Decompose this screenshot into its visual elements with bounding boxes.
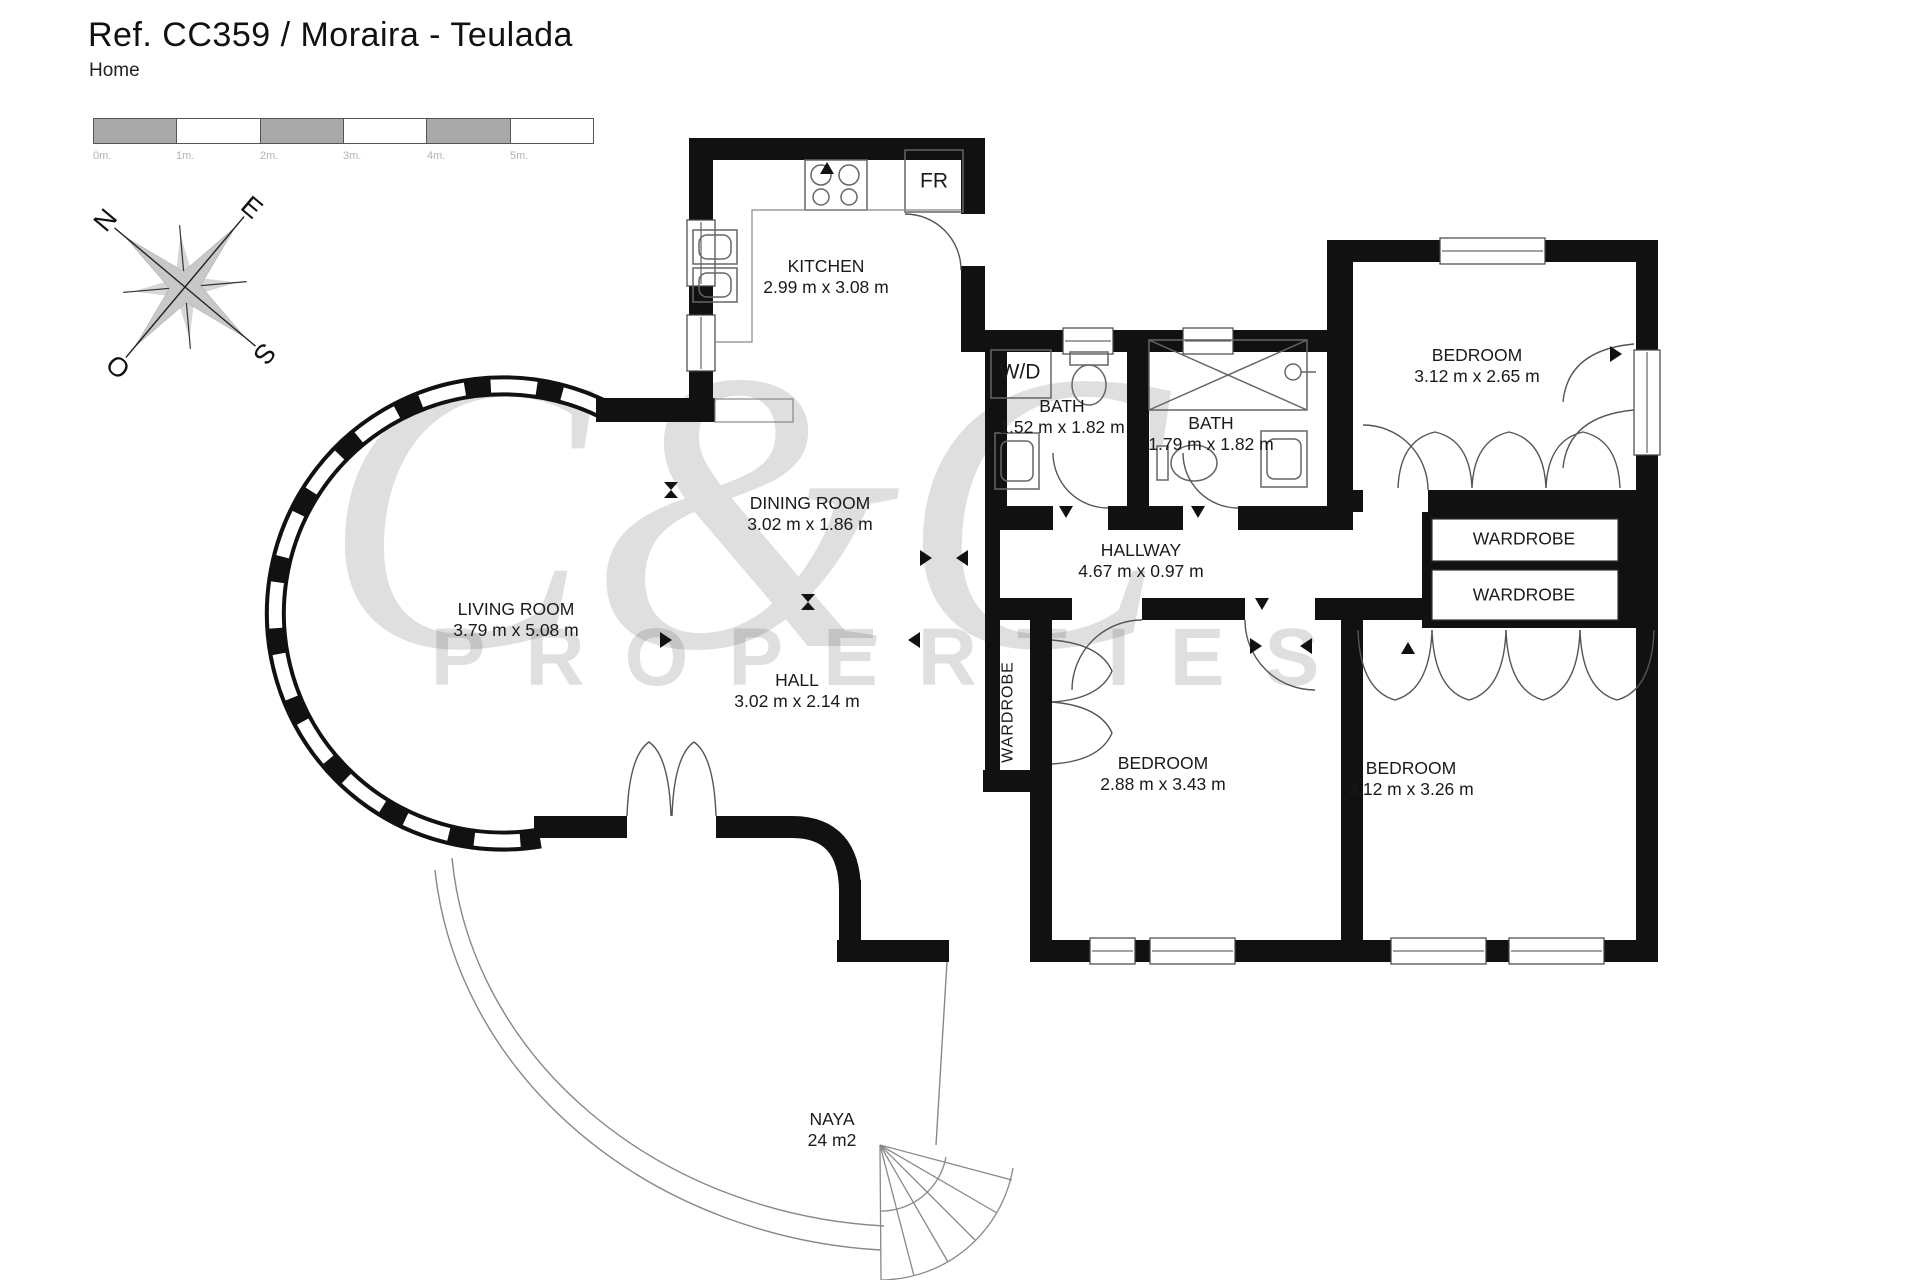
washer-dryer-label: W/D (1000, 362, 1041, 383)
wardrobe-vertical-label: WARDROBE (998, 661, 1019, 763)
room-label-bedroom-bottom-right: BEDROOM 3.12 m x 3.26 m (1348, 758, 1473, 800)
curved-wall (792, 827, 850, 892)
naya-outline (435, 858, 947, 1250)
floorplan-page: Ref. CC359 / Moraira - Teulada Home 0m. … (0, 0, 1920, 1280)
room-label-kitchen: KITCHEN 2.99 m x 3.08 m (763, 256, 888, 298)
room-label-bedroom-middle: BEDROOM 2.88 m x 3.43 m (1100, 753, 1225, 795)
wardrobe-lower-label: WARDROBE (1473, 585, 1575, 606)
room-label-bath-large: BATH 1.79 m x 1.82 m (1148, 413, 1273, 455)
floorplan-drawing (0, 0, 1920, 1280)
fridge-label: FR (920, 171, 948, 192)
kitchen-peninsula (715, 399, 793, 422)
stove-icon (805, 160, 867, 210)
wardrobe-upper-label: WARDROBE (1473, 529, 1575, 550)
room-label-bedroom-top-right: BEDROOM 3.12 m x 2.65 m (1414, 345, 1539, 387)
room-label-bath-small: BATH 1.52 m x 1.82 m (999, 396, 1124, 438)
room-label-hall: HALL 3.02 m x 2.14 m (734, 670, 859, 712)
stairs-icon (880, 1145, 1013, 1280)
room-label-naya: NAYA 24 m2 (808, 1109, 857, 1151)
room-label-living: LIVING ROOM 3.79 m x 5.08 m (453, 599, 578, 641)
room-label-dining: DINING ROOM 3.02 m x 1.86 m (747, 493, 872, 535)
room-label-hallway: HALLWAY 4.67 m x 0.97 m (1078, 540, 1203, 582)
